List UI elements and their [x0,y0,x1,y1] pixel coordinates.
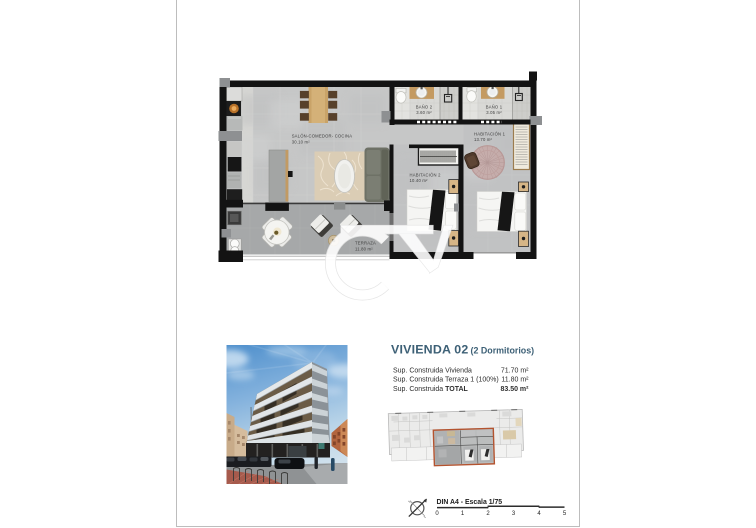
svg-text:83.50 m²: 83.50 m² [500,386,529,393]
svg-text:HABITACIÓN 1: HABITACIÓN 1 [474,132,506,137]
svg-text:VIVIENDA 02: VIVIENDA 02 [391,343,469,357]
svg-text:Sup. Construida TOTAL: Sup. Construida TOTAL [393,386,469,393]
svg-text:0: 0 [435,511,439,517]
svg-text:Sup. Construida Vivienda: Sup. Construida Vivienda [393,368,472,375]
svg-text:30.10 m²: 30.10 m² [292,140,311,145]
svg-text:BAÑO 1: BAÑO 1 [486,105,503,110]
svg-text:3.60 m²: 3.60 m² [416,110,432,115]
svg-text:TERRAZA: TERRAZA [355,241,376,246]
svg-text:13.70 m²: 13.70 m² [474,137,493,142]
svg-text:DIN A4 - Escala 1/75: DIN A4 - Escala 1/75 [437,499,503,506]
svg-text:3: 3 [512,511,516,517]
svg-text:(2 Dormitorios): (2 Dormitorios) [471,346,535,356]
svg-text:71.70 m²: 71.70 m² [501,368,529,375]
svg-text:Sup. Construida Terraza 1 (100: Sup. Construida Terraza 1 (100%) [393,377,499,384]
svg-text:4: 4 [537,511,541,517]
svg-text:3.05 m²: 3.05 m² [486,110,502,115]
svg-text:5: 5 [563,511,567,517]
svg-text:HABITACIÓN 2: HABITACIÓN 2 [410,173,442,178]
svg-text:11.80 m²: 11.80 m² [355,247,373,252]
svg-text:10.40 m²: 10.40 m² [410,178,429,183]
svg-text:11.80 m²: 11.80 m² [501,377,529,384]
svg-text:SALÓN-COMEDOR- COCINA: SALÓN-COMEDOR- COCINA [292,134,353,139]
svg-text:1: 1 [461,511,465,517]
svg-text:BAÑO 2: BAÑO 2 [416,105,433,110]
svg-text:2: 2 [486,511,490,517]
